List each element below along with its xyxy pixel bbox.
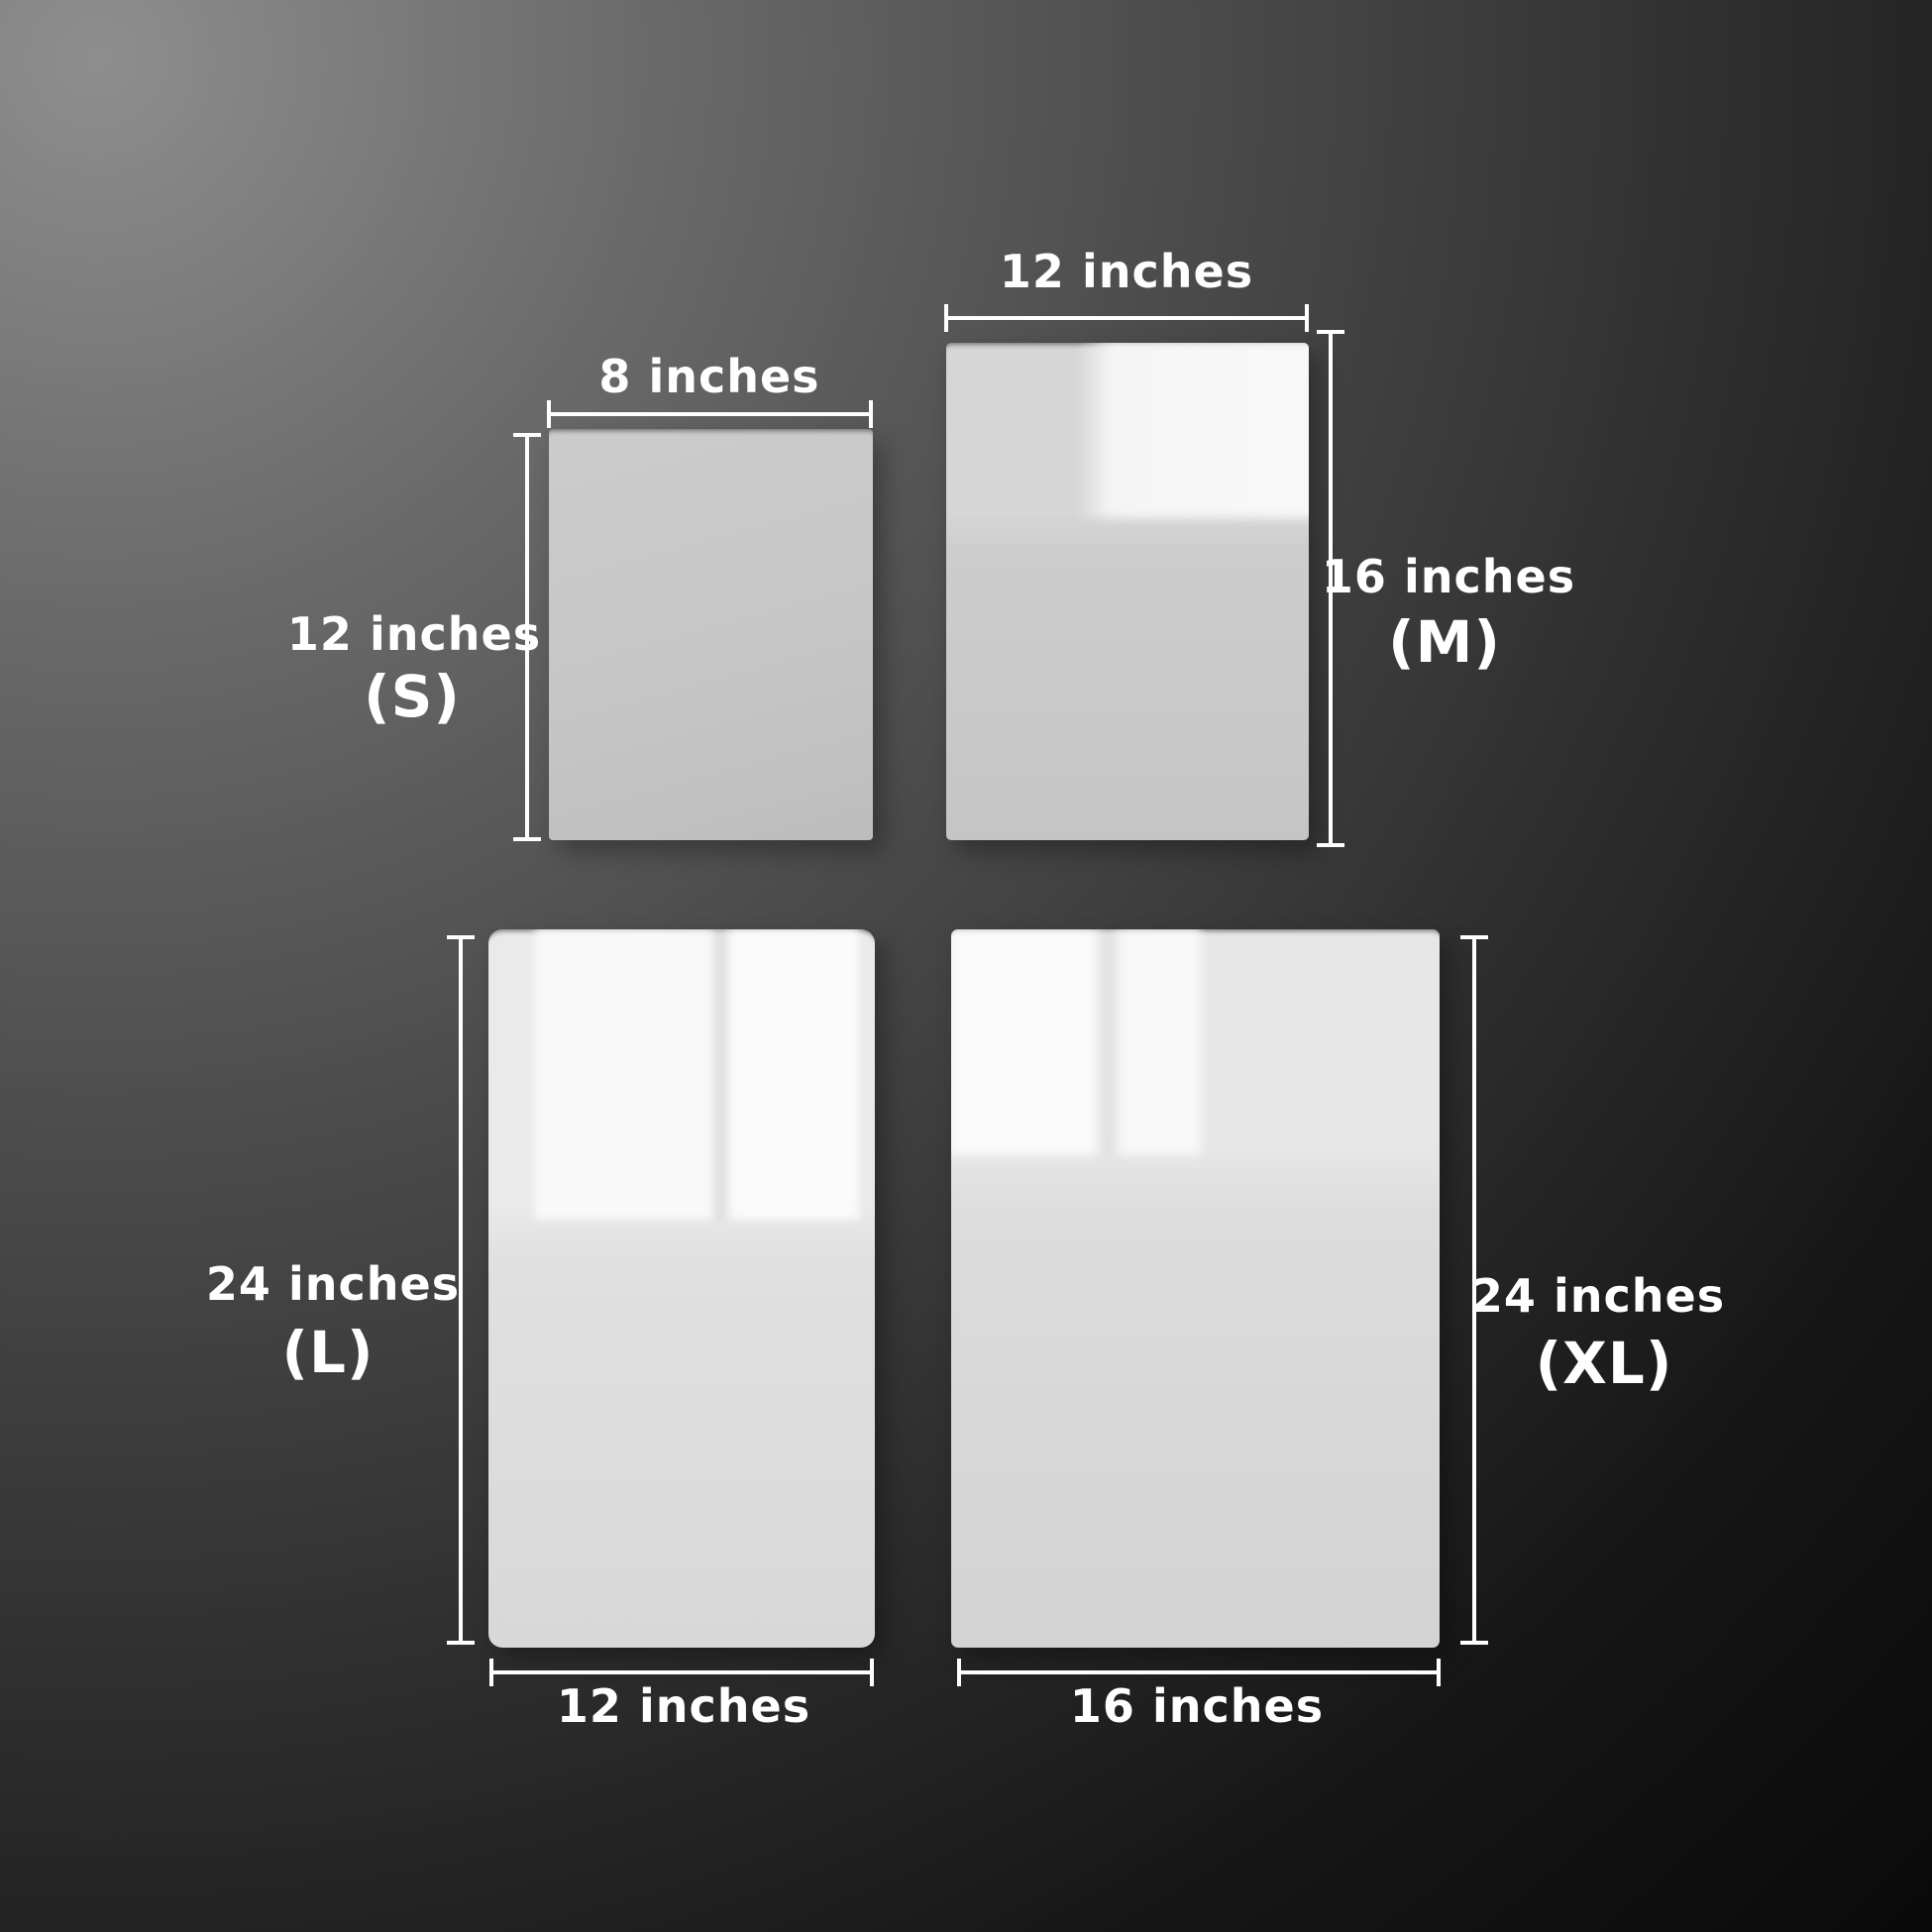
dim-line-m-width <box>944 316 1309 320</box>
label-xl-height: 24 inches <box>1471 1273 1725 1319</box>
size-comparison-diagram: 8 inches 12 inches (S) 12 inches 16 inch… <box>0 0 1932 1932</box>
label-s-height: 12 inches <box>287 611 541 657</box>
dim-line-s-width <box>547 412 873 416</box>
label-l-size: (L) <box>282 1324 375 1381</box>
label-m-width: 12 inches <box>1000 249 1253 294</box>
label-s-width: 8 inches <box>598 354 819 399</box>
panel-l-reflection <box>535 929 860 1220</box>
label-s-size: (S) <box>364 668 461 725</box>
label-xl-size: (XL) <box>1536 1335 1673 1392</box>
panel-m <box>946 343 1309 840</box>
label-l-height: 24 inches <box>206 1261 460 1307</box>
label-m-height: 16 inches <box>1322 554 1575 599</box>
label-m-size: (M) <box>1388 613 1501 671</box>
panel-s <box>549 429 873 840</box>
label-xl-width: 16 inches <box>1070 1683 1324 1729</box>
dim-line-l-width <box>489 1670 874 1674</box>
label-l-width: 12 inches <box>557 1683 810 1729</box>
panel-xl-reflection <box>951 929 1201 1155</box>
panel-m-reflection <box>1077 343 1309 518</box>
dim-line-xl-width <box>957 1670 1441 1674</box>
panel-xl <box>951 929 1440 1648</box>
panel-l <box>488 929 875 1648</box>
